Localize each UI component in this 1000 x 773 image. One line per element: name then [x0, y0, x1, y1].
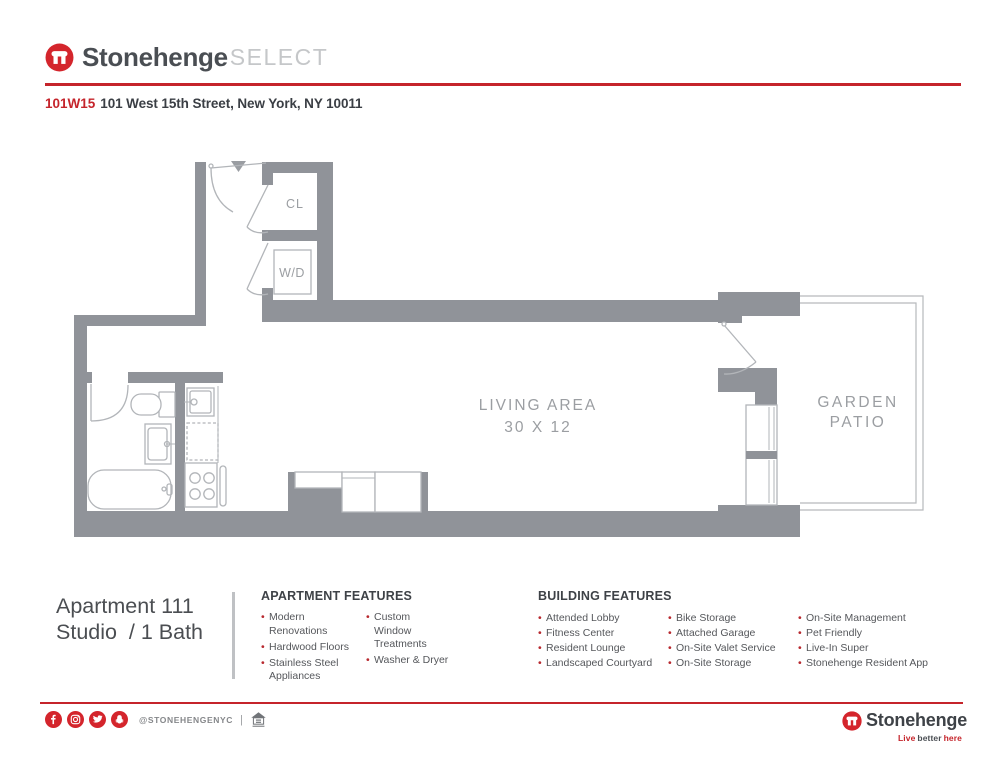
flyer-page: Stonehenge SELECT 101W15101 West 15th St…	[0, 0, 1000, 773]
toilet	[131, 392, 175, 417]
stove	[185, 463, 226, 507]
header-brand: Stonehenge SELECT	[45, 42, 328, 73]
apartment-features-heading: APARTMENT FEATURES	[261, 589, 412, 603]
apartment-features-col2: Custom Window TreatmentsWasher & Dryer	[366, 611, 450, 670]
feature-item: Hardwood Floors	[261, 641, 349, 655]
feature-item: On-Site Management	[798, 611, 938, 626]
feature-item: Attached Garage	[668, 626, 792, 641]
tagline-live: Live	[898, 733, 915, 743]
feature-item: On-Site Valet Service	[668, 641, 792, 656]
dishwasher	[187, 423, 218, 460]
footer-brand-name: Stonehenge	[866, 710, 967, 731]
feature-item: Resident Lounge	[538, 641, 660, 656]
kitchen-sink	[184, 388, 214, 416]
bathtub	[88, 470, 172, 509]
building-features-col3: On-Site ManagementPet FriendlyLive-In Su…	[798, 611, 938, 671]
feature-item: Custom Window Treatments	[366, 611, 450, 652]
address-row: 101W15101 West 15th Street, New York, NY…	[45, 96, 362, 111]
feature-item: Live-In Super	[798, 641, 938, 656]
unit-subtitle: Studio / 1 Bath	[56, 620, 203, 645]
patio-label-2: PATIO	[830, 414, 887, 431]
header-rule	[45, 83, 961, 86]
feature-item: Stainless Steel Appliances	[261, 657, 349, 684]
building-features-heading: BUILDING FEATURES	[538, 589, 672, 603]
closet-label: CL	[286, 197, 304, 211]
living-area-size: 30 X 12	[504, 419, 571, 436]
feature-item: Bike Storage	[668, 611, 792, 626]
unit-title: Apartment 111	[56, 594, 194, 619]
wd-door	[247, 243, 268, 289]
instagram-icon[interactable]	[67, 711, 84, 728]
stonehenge-footer-logo-icon	[842, 711, 862, 731]
tagline-better: better	[917, 733, 941, 743]
apartment-features-col1: Modern RenovationsHardwood FloorsStainle…	[261, 611, 349, 686]
feature-item: Fitness Center	[538, 626, 660, 641]
bathroom-sink	[145, 424, 175, 464]
feature-item: Attended Lobby	[538, 611, 660, 626]
feature-item: On-Site Storage	[668, 656, 792, 671]
patio-label-1: GARDEN	[817, 394, 898, 411]
windows	[746, 405, 777, 505]
equal-housing-icon	[250, 711, 267, 728]
footer-brand: Stonehenge	[842, 710, 967, 731]
footer-rule	[40, 702, 963, 704]
stonehenge-logo-icon	[45, 43, 74, 72]
building-code: 101W15	[45, 96, 95, 111]
feature-item: Pet Friendly	[798, 626, 938, 641]
twitter-icon[interactable]	[89, 711, 106, 728]
feature-item: Landscaped Courtyard	[538, 656, 660, 671]
building-features-col1: Attended LobbyFitness CenterResident Lou…	[538, 611, 660, 671]
closet-door	[247, 185, 268, 227]
building-address: 101 West 15th Street, New York, NY 10011	[100, 96, 362, 111]
floor-plan: CL W/D LIVING AREA 30 X 12 GARDEN PATIO	[0, 130, 1000, 560]
social-handle[interactable]: @STONEHENGENYC	[139, 715, 233, 725]
brand-suffix: SELECT	[230, 44, 328, 71]
vertical-divider	[232, 592, 235, 679]
footer-tagline: Livebetterhere	[800, 733, 962, 743]
brand-name: Stonehenge	[82, 42, 228, 73]
feature-item: Washer & Dryer	[366, 654, 450, 668]
wd-label: W/D	[279, 266, 305, 280]
feature-item: Modern Renovations	[261, 611, 349, 638]
building-features-col2: Bike StorageAttached GarageOn-Site Valet…	[668, 611, 792, 671]
footer-separator: |	[240, 714, 243, 726]
snapchat-icon[interactable]	[111, 711, 128, 728]
feature-item: Stonehenge Resident App	[798, 656, 938, 671]
social-row: @STONEHENGENYC |	[45, 711, 267, 728]
tagline-here: here	[944, 733, 962, 743]
facebook-icon[interactable]	[45, 711, 62, 728]
floor-plan-walls	[74, 162, 800, 537]
living-area-label: LIVING AREA	[479, 397, 597, 414]
patio-door	[724, 325, 756, 362]
